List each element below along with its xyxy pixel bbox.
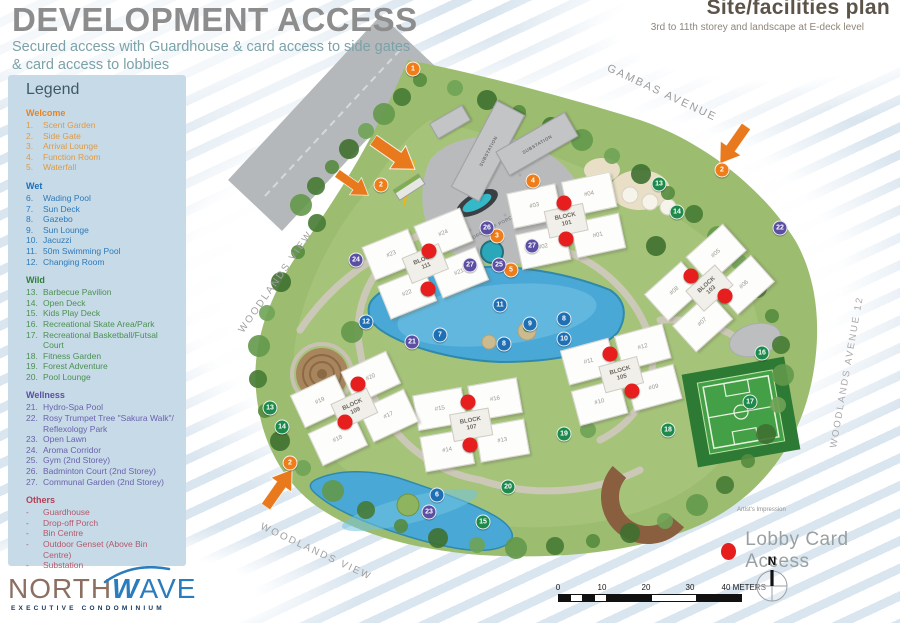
scale-bar-segment bbox=[571, 595, 583, 601]
legend-item-number: 8. bbox=[26, 214, 43, 225]
legend-item: 12.Changing Room bbox=[26, 257, 180, 268]
legend-item-number: 14. bbox=[26, 298, 43, 309]
page-title: DEVELOPMENT ACCESS bbox=[12, 2, 418, 38]
legend-item: 13.Barbecue Pavilion bbox=[26, 287, 180, 298]
legend-item-number: 27. bbox=[26, 477, 43, 488]
legend-item: -Guardhouse bbox=[26, 507, 180, 518]
logo-north-text: NORTH bbox=[8, 573, 112, 604]
scale-bar-segment bbox=[652, 595, 697, 601]
legend-item-label: Function Room bbox=[43, 152, 180, 163]
legend-item-number: 16. bbox=[26, 319, 43, 330]
legend-item: 27.Communal Garden (2nd Storey) bbox=[26, 477, 180, 488]
legend-item: 19.Forest Adventure bbox=[26, 361, 180, 372]
legend-item-label: Changing Room bbox=[43, 257, 180, 268]
legend-item-number: 20. bbox=[26, 372, 43, 383]
legend-item-label: Aroma Corridor bbox=[43, 445, 180, 456]
legend-item-label: Fitness Garden bbox=[43, 351, 180, 362]
legend-item: 9.Sun Lounge bbox=[26, 225, 180, 236]
northwave-logo: NORTHWAVE EXECUTIVE CONDOMINIUM bbox=[8, 574, 228, 612]
legend-item-label: Scent Garden bbox=[43, 120, 180, 131]
legend-item: 20.Pool Lounge bbox=[26, 372, 180, 383]
legend-section-wellness: Wellness21.Hydro-Spa Pool22.Rosy Trumpet… bbox=[26, 390, 180, 487]
legend-item: 16.Recreational Skate Area/Park bbox=[26, 319, 180, 330]
legend-item: 21.Hydro-Spa Pool bbox=[26, 402, 180, 413]
legend-item-number: - bbox=[26, 539, 43, 560]
legend-section-wet: Wet6.Wading Pool7.Sun Deck8.Gazebo9.Sun … bbox=[26, 181, 180, 267]
legend-item-label: Forest Adventure bbox=[43, 361, 180, 372]
legend-item-label: Waterfall bbox=[43, 162, 180, 173]
legend-item-label: Bin Centre bbox=[43, 528, 180, 539]
legend-item-number: 13. bbox=[26, 287, 43, 298]
legend-item-number: 6. bbox=[26, 193, 43, 204]
logo-swoosh-icon bbox=[103, 566, 173, 584]
scale-tick-label: 20 bbox=[642, 583, 651, 592]
legend-item-number: 1. bbox=[26, 120, 43, 131]
legend-item-number: 7. bbox=[26, 204, 43, 215]
page-subtitle-line1: Secured access with Guardhouse & card ac… bbox=[12, 38, 418, 56]
legend-item: 23.Open Lawn bbox=[26, 434, 180, 445]
lobby-card-access-dot-icon bbox=[721, 543, 736, 560]
legend-item: 18.Fitness Garden bbox=[26, 351, 180, 362]
legend-item-label: Jacuzzi bbox=[43, 235, 180, 246]
legend-item: 5.Waterfall bbox=[26, 162, 180, 173]
scale-tick-label: 10 bbox=[598, 583, 607, 592]
legend-section-header: Wild bbox=[26, 275, 180, 285]
plan-header: Site/facilities plan 3rd to 11th storey … bbox=[651, 0, 890, 33]
legend-item: -Bin Centre bbox=[26, 528, 180, 539]
legend-item-label: Wading Pool bbox=[43, 193, 180, 204]
legend-item-number: 25. bbox=[26, 455, 43, 466]
legend-item-number: 18. bbox=[26, 351, 43, 362]
page-header: DEVELOPMENT ACCESS Secured access with G… bbox=[12, 2, 418, 74]
plan-subtitle: 3rd to 11th storey and landscape at E-de… bbox=[651, 22, 890, 33]
legend-item: 15.Kids Play Deck bbox=[26, 308, 180, 319]
legend-item-label: Drop-off Porch bbox=[43, 518, 180, 529]
legend-item-number: - bbox=[26, 560, 43, 571]
legend-item: 17.Recreational Basketball/Futsal Court bbox=[26, 330, 180, 351]
legend-item: 2.Side Gate bbox=[26, 131, 180, 142]
legend-item-label: Arrival Lounge bbox=[43, 141, 180, 152]
legend-item: -Drop-off Porch bbox=[26, 518, 180, 529]
legend-section-wild: Wild13.Barbecue Pavilion14.Open Deck15.K… bbox=[26, 275, 180, 382]
logo-tagline: EXECUTIVE CONDOMINIUM bbox=[8, 605, 228, 612]
legend-title: Legend bbox=[26, 81, 180, 99]
legend-section-header: Wellness bbox=[26, 390, 180, 400]
legend-item: 10.Jacuzzi bbox=[26, 235, 180, 246]
legend-item-label: Hydro-Spa Pool bbox=[43, 402, 180, 413]
legend-item: 8.Gazebo bbox=[26, 214, 180, 225]
scale-bar-segments bbox=[558, 594, 742, 602]
legend-item: 25.Gym (2nd Storey) bbox=[26, 455, 180, 466]
legend-item-label: Sun Lounge bbox=[43, 225, 180, 236]
legend-item: 7.Sun Deck bbox=[26, 204, 180, 215]
scale-tick-label: 0 bbox=[556, 583, 560, 592]
scale-bar-segment bbox=[583, 595, 595, 601]
legend-item-number: 9. bbox=[26, 225, 43, 236]
legend-item: 22.Rosy Trumpet Tree "Sakura Walk"/ Refl… bbox=[26, 413, 180, 434]
site-plan-page: GAMBAS AVENUEWOODLANDS AVENUE 12WOODLAND… bbox=[0, 0, 900, 623]
artists-impression-note: Artist's Impression bbox=[737, 507, 786, 513]
legend-item-number: 4. bbox=[26, 152, 43, 163]
legend-item-label: 50m Swimming Pool bbox=[43, 246, 180, 257]
scale-bar-segment bbox=[607, 595, 652, 601]
north-compass: N bbox=[752, 556, 792, 609]
legend-item-number: 2. bbox=[26, 131, 43, 142]
legend-item-number: 17. bbox=[26, 330, 43, 351]
legend-item: 24.Aroma Corridor bbox=[26, 445, 180, 456]
legend-item: 1.Scent Garden bbox=[26, 120, 180, 131]
legend-sections: Welcome1.Scent Garden2.Side Gate3.Arriva… bbox=[26, 108, 180, 571]
legend-item: 26.Badminton Court (2nd Storey) bbox=[26, 466, 180, 477]
legend-item-number: 11. bbox=[26, 246, 43, 257]
legend-item-number: - bbox=[26, 528, 43, 539]
scale-bar-segment bbox=[559, 595, 571, 601]
legend-item-number: 3. bbox=[26, 141, 43, 152]
legend-item-label: Kids Play Deck bbox=[43, 308, 180, 319]
legend-section-welcome: Welcome1.Scent Garden2.Side Gate3.Arriva… bbox=[26, 108, 180, 173]
legend-item-label: Recreational Skate Area/Park bbox=[43, 319, 180, 330]
legend-item-number: 15. bbox=[26, 308, 43, 319]
legend-item-label: Side Gate bbox=[43, 131, 180, 142]
legend-item-label: Communal Garden (2nd Storey) bbox=[43, 477, 180, 488]
legend-item-label: Gym (2nd Storey) bbox=[43, 455, 180, 466]
legend-section-header: Wet bbox=[26, 181, 180, 191]
legend-item: 4.Function Room bbox=[26, 152, 180, 163]
legend-item-label: Outdoor Genset (Above Bin Centre) bbox=[43, 539, 180, 560]
legend-item: 14.Open Deck bbox=[26, 298, 180, 309]
legend-section-header: Welcome bbox=[26, 108, 180, 118]
legend-section-others: Others-Guardhouse-Drop-off Porch-Bin Cen… bbox=[26, 495, 180, 571]
legend-item-label: Recreational Basketball/Futsal Court bbox=[43, 330, 180, 351]
legend-item-label: Badminton Court (2nd Storey) bbox=[43, 466, 180, 477]
scale-bar-segment bbox=[595, 595, 607, 601]
legend-item-label: Barbecue Pavilion bbox=[43, 287, 180, 298]
logo-wordmark: NORTHWAVE bbox=[8, 574, 228, 604]
legend-panel: Legend Welcome1.Scent Garden2.Side Gate3… bbox=[8, 75, 186, 566]
legend-section-header: Others bbox=[26, 495, 180, 505]
legend-item-label: Sun Deck bbox=[43, 204, 180, 215]
legend-item-label: Rosy Trumpet Tree "Sakura Walk"/ Reflexo… bbox=[43, 413, 180, 434]
legend-item-label: Pool Lounge bbox=[43, 372, 180, 383]
legend-item-number: 22. bbox=[26, 413, 43, 434]
scale-bar-segment bbox=[697, 595, 741, 601]
plan-title: Site/facilities plan bbox=[651, 0, 890, 20]
legend-item: 11.50m Swimming Pool bbox=[26, 246, 180, 257]
legend-item-number: - bbox=[26, 518, 43, 529]
legend-item-number: 19. bbox=[26, 361, 43, 372]
legend-item-number: 24. bbox=[26, 445, 43, 456]
legend-item: 6.Wading Pool bbox=[26, 193, 180, 204]
page-subtitle-line2: & card access to lobbies bbox=[12, 56, 418, 74]
scale-tick-label: 30 bbox=[686, 583, 695, 592]
legend-item-number: 10. bbox=[26, 235, 43, 246]
legend-item-number: 5. bbox=[26, 162, 43, 173]
legend-item-number: 23. bbox=[26, 434, 43, 445]
legend-item-label: Open Lawn bbox=[43, 434, 180, 445]
legend-item: -Outdoor Genset (Above Bin Centre) bbox=[26, 539, 180, 560]
legend-item-number: 21. bbox=[26, 402, 43, 413]
compass-icon bbox=[754, 566, 790, 604]
legend-item-label: Guardhouse bbox=[43, 507, 180, 518]
legend-item-number: - bbox=[26, 507, 43, 518]
legend-item: 3.Arrival Lounge bbox=[26, 141, 180, 152]
lobby-card-access-key: Lobby Card Access bbox=[721, 529, 900, 573]
legend-item-number: 12. bbox=[26, 257, 43, 268]
legend-item-label: Open Deck bbox=[43, 298, 180, 309]
legend-item-number: 26. bbox=[26, 466, 43, 477]
legend-item-label: Gazebo bbox=[43, 214, 180, 225]
north-letter: N bbox=[752, 556, 792, 566]
